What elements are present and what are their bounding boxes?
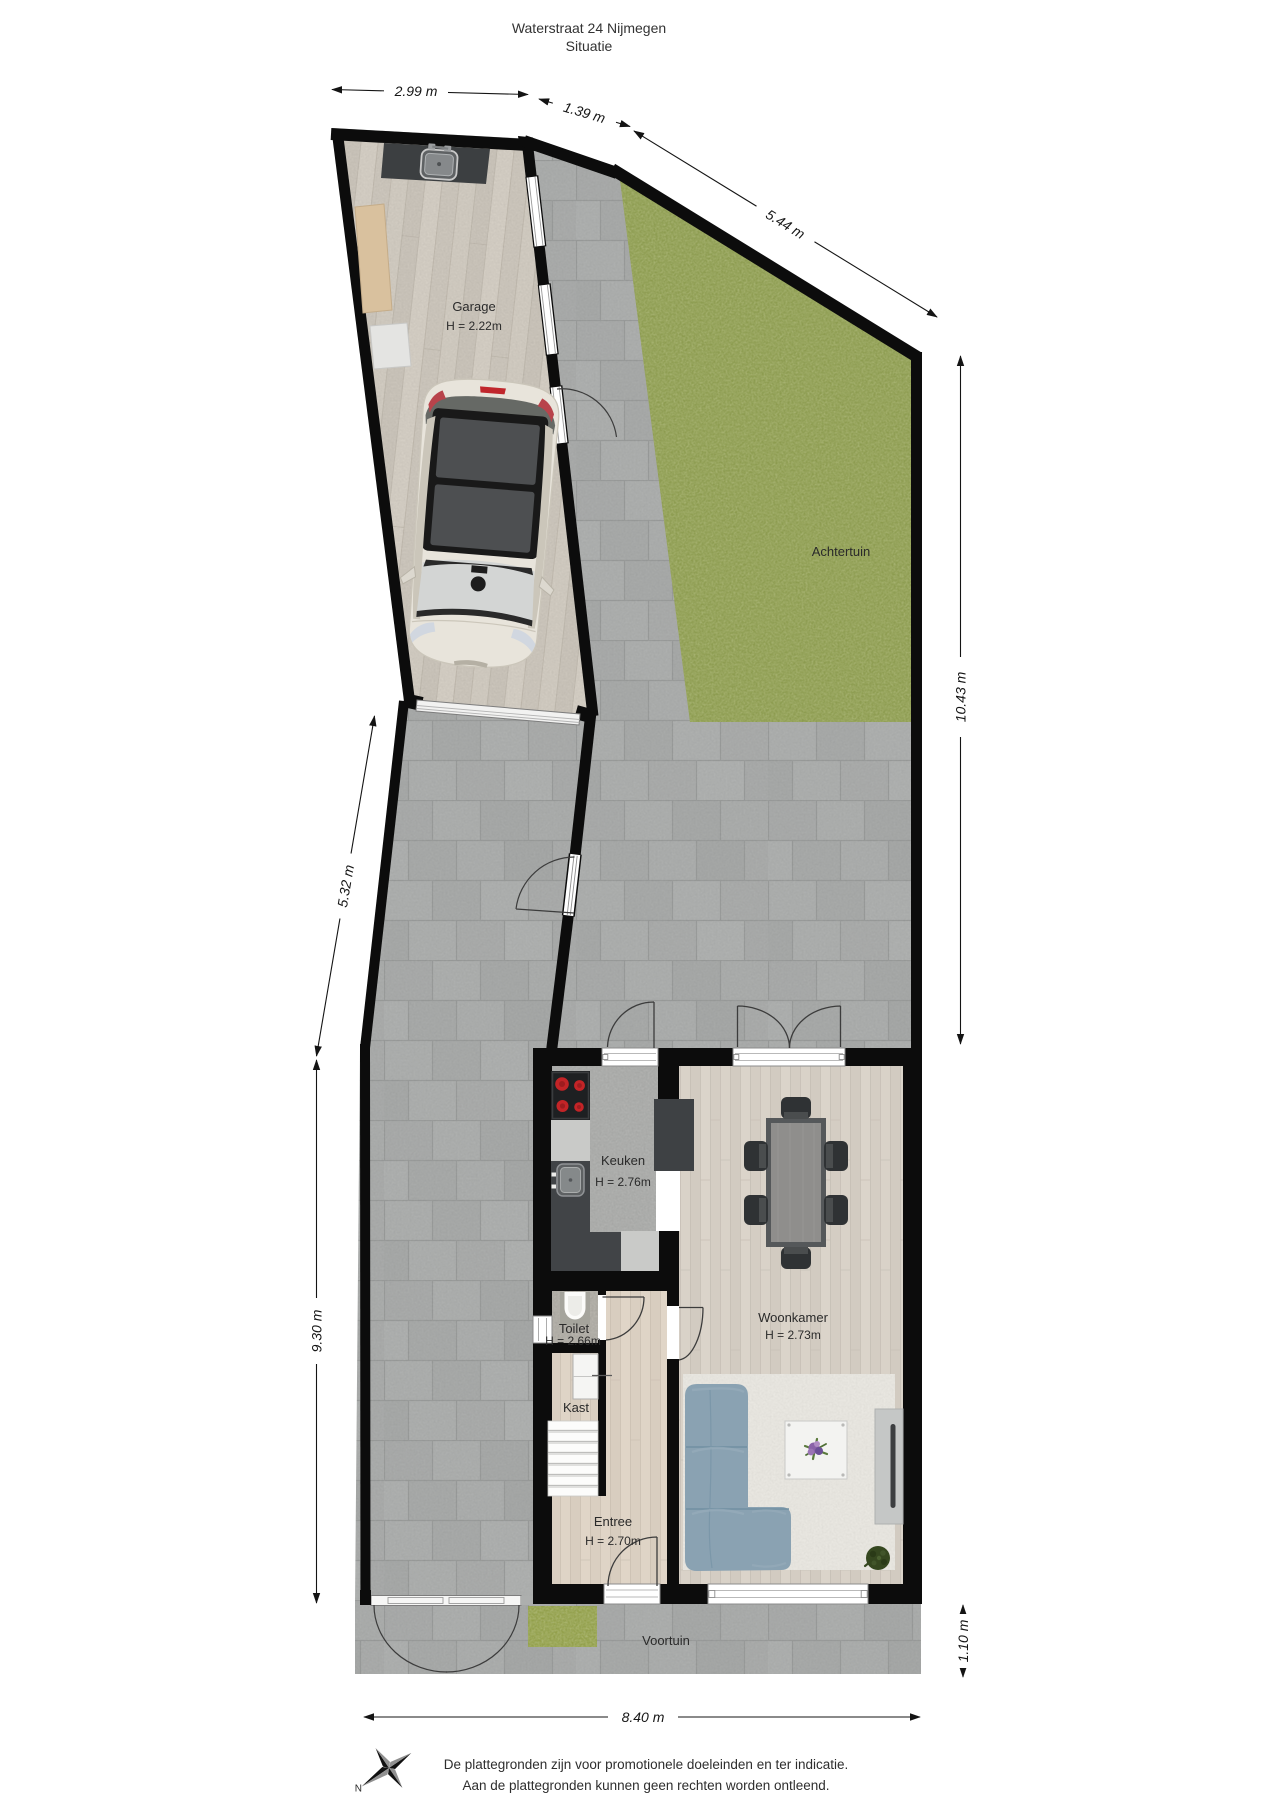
svg-text:8.40 m: 8.40 m <box>622 1709 665 1725</box>
svg-text:Kast: Kast <box>563 1400 589 1415</box>
svg-text:2.99 m: 2.99 m <box>394 83 438 99</box>
svg-text:Aan de plattegronden kunnen ge: Aan de plattegronden kunnen geen rechten… <box>462 1778 829 1793</box>
svg-text:Waterstraat 24 Nijmegen: Waterstraat 24 Nijmegen <box>512 20 666 36</box>
svg-text:Voortuin: Voortuin <box>642 1633 690 1648</box>
svg-text:10.43 m: 10.43 m <box>953 671 969 722</box>
svg-text:Achtertuin: Achtertuin <box>812 544 871 559</box>
svg-text:9.30 m: 9.30 m <box>309 1309 325 1352</box>
svg-text:H = 2.22m: H = 2.22m <box>446 319 502 333</box>
svg-text:H = 2.76m: H = 2.76m <box>595 1175 651 1189</box>
svg-text:H = 2.70m: H = 2.70m <box>585 1534 641 1548</box>
svg-text:N: N <box>355 1784 362 1795</box>
svg-text:Woonkamer: Woonkamer <box>758 1310 829 1325</box>
svg-text:Keuken: Keuken <box>601 1153 645 1168</box>
svg-text:De plattegronden zijn voor pro: De plattegronden zijn voor promotionele … <box>444 1757 849 1772</box>
svg-text:H = 2.73m: H = 2.73m <box>765 1328 821 1342</box>
svg-text:Situatie: Situatie <box>566 38 613 54</box>
svg-text:H = 2.66m: H = 2.66m <box>545 1334 601 1348</box>
svg-text:Garage: Garage <box>452 299 495 314</box>
svg-text:1.10 m: 1.10 m <box>955 1619 971 1662</box>
svg-text:Entree: Entree <box>594 1514 632 1529</box>
